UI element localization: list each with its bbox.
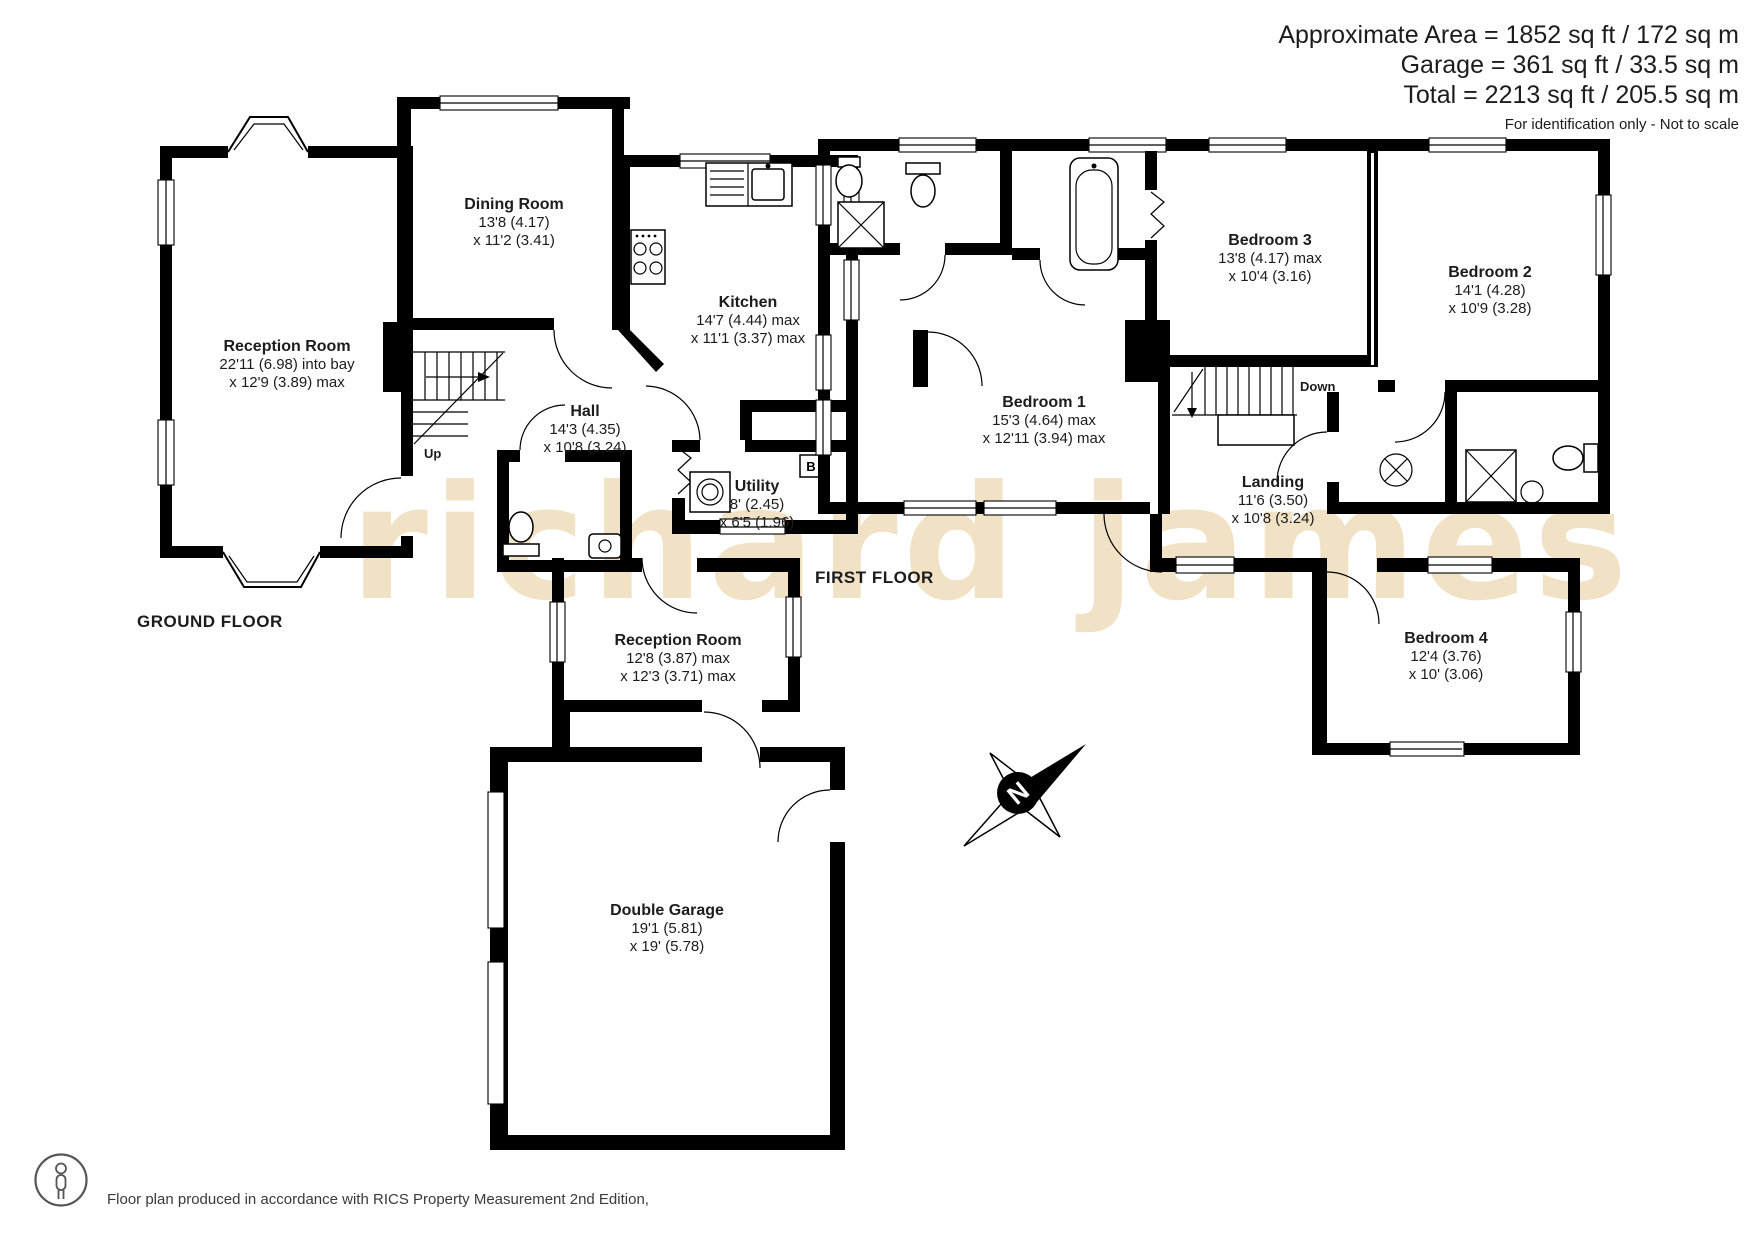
sink-icon <box>706 163 792 206</box>
garage-door <box>488 962 504 1104</box>
door-arc <box>778 790 830 842</box>
room-label-reception-2: Reception Room 12'8 (3.87) max x 12'3 (3… <box>614 632 741 686</box>
door-arc <box>642 558 697 613</box>
room-label-reception-1: Reception Room 22'11 (6.98) into bay x 1… <box>219 338 354 392</box>
folding-door <box>1151 192 1164 238</box>
room-label-garage: Double Garage 19'1 (5.81) x 19' (5.78) <box>610 902 724 956</box>
ground-floor-label: GROUND FLOOR <box>137 612 283 632</box>
room-label-bedroom-1: Bedroom 1 15'3 (4.64) max x 12'11 (3.94)… <box>983 394 1106 448</box>
door-arc <box>900 255 945 300</box>
bathroom-walls <box>830 151 1164 367</box>
first-floor-label: FIRST FLOOR <box>815 568 934 588</box>
door-arc <box>1327 572 1379 624</box>
door-arc <box>1395 392 1445 442</box>
basin-icon <box>1521 481 1543 503</box>
toilet-icon <box>906 163 940 207</box>
total-area-line: Total = 2213 sq ft / 205.5 sq m <box>1278 80 1739 110</box>
stairs-arrow <box>1187 408 1197 418</box>
bay-window-bottom-glazing <box>229 556 314 582</box>
folding-door <box>678 448 691 494</box>
shower-icon <box>1466 450 1516 502</box>
room-label-hall: Hall 14'3 (4.35) x 10'8 (3.24) <box>544 403 627 457</box>
room-label-bedroom-4: Bedroom 4 12'4 (3.76) x 10' (3.06) <box>1404 630 1488 684</box>
door-arc <box>341 478 401 538</box>
stairs-down-label: Down <box>1300 379 1335 394</box>
stairs-up-label: Up <box>424 446 441 461</box>
approximate-area-line: Approximate Area = 1852 sq ft / 172 sq m <box>1278 20 1739 50</box>
garage-area-line: Garage = 361 sq ft / 33.5 sq m <box>1278 50 1739 80</box>
boiler-label: B <box>806 459 815 474</box>
staircase-ground <box>413 352 505 444</box>
first-floor-plan <box>816 138 1611 756</box>
footer-line-1: Floor plan produced in accordance with R… <box>107 1190 787 1209</box>
ensuite-walls <box>1380 392 1598 503</box>
door-arc <box>554 330 612 388</box>
room-label-utility: Utility 8' (2.45) x 6'5 (1.96) <box>720 478 795 532</box>
area-summary: Approximate Area = 1852 sq ft / 172 sq m… <box>1278 20 1739 133</box>
chimney-breast <box>383 322 413 392</box>
room-label-bedroom-3: Bedroom 3 13'8 (4.17) max x 10'4 (3.16) <box>1218 232 1322 286</box>
door-arc <box>646 386 700 440</box>
hob-icon <box>631 230 665 284</box>
bay-window-top-glazing <box>234 124 303 150</box>
floorplan-page: richard james Approximate Area = 1852 sq… <box>0 0 1755 1241</box>
door-arc <box>928 332 982 386</box>
basin-icon <box>836 157 862 197</box>
toilet-icon <box>1553 444 1598 472</box>
stairs-arrow <box>478 372 490 382</box>
scale-note: For identification only - Not to scale <box>1278 116 1739 133</box>
bay-window-top <box>228 117 308 152</box>
compass-icon: N <box>964 744 1086 846</box>
angled-wall <box>618 330 664 372</box>
stair-banister <box>1218 415 1294 445</box>
bathtub-icon <box>1070 158 1118 270</box>
person-scale-icon <box>33 1152 89 1208</box>
door-arc <box>704 712 760 768</box>
footer-text: Floor plan produced in accordance with R… <box>107 1152 787 1241</box>
room-label-landing: Landing 11'6 (3.50) x 10'8 (3.24) <box>1232 474 1315 528</box>
shower-icon <box>838 202 884 248</box>
extractor-icon <box>1380 454 1412 486</box>
room-label-dining: Dining Room 13'8 (4.17) x 11'2 (3.41) <box>464 196 564 250</box>
room-label-kitchen: Kitchen 14'7 (4.44) max x 11'1 (3.37) ma… <box>691 294 805 348</box>
footer: Floor plan produced in accordance with R… <box>33 1152 787 1241</box>
room-label-bedroom-2: Bedroom 2 14'1 (4.28) x 10'9 (3.28) <box>1448 264 1532 318</box>
garage-door <box>488 792 504 928</box>
basin-icon <box>589 534 621 558</box>
